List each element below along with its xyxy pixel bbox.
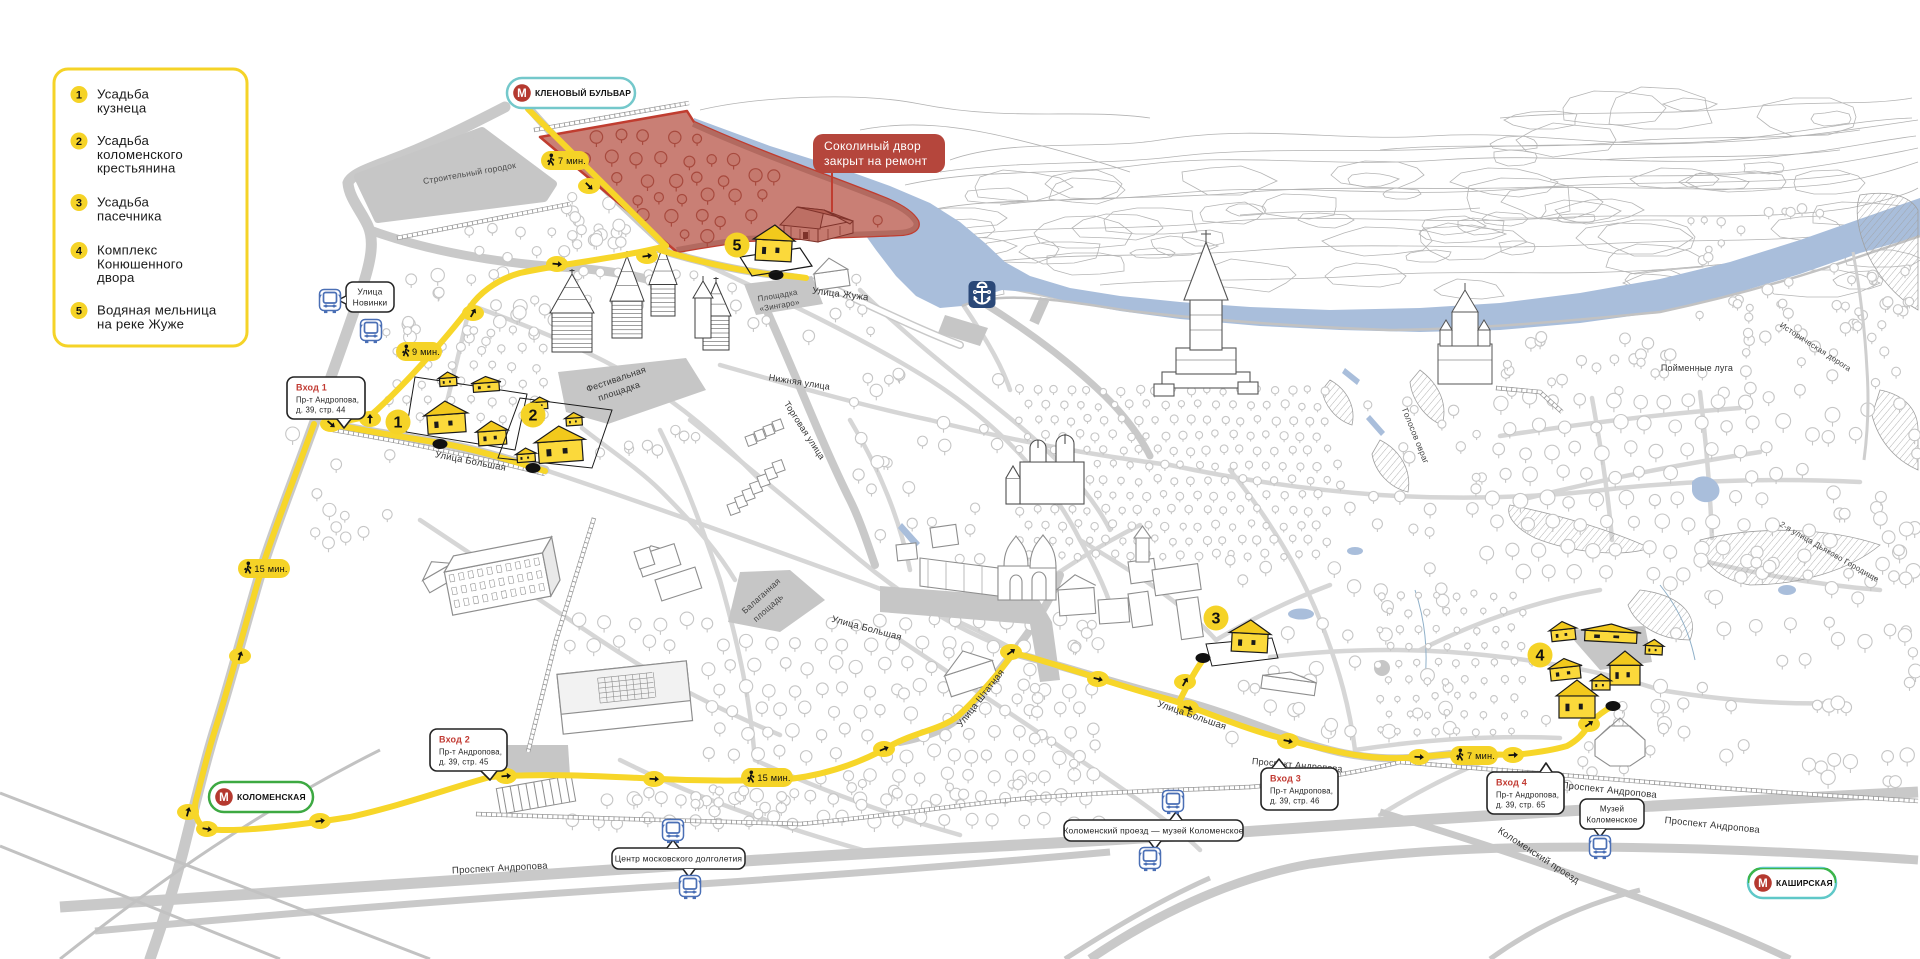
svg-text:5: 5 [76,306,82,318]
svg-text:на реке Жуже: на реке Жуже [97,316,184,331]
svg-text:Улица: Улица [357,287,382,297]
svg-text:Музей: Музей [1600,805,1624,814]
svg-text:2: 2 [76,136,82,148]
svg-text:Коломенское: Коломенское [1586,816,1638,825]
svg-text:Усадьба: Усадьба [97,87,149,102]
svg-text:7 мин.: 7 мин. [1467,751,1495,761]
svg-text:5: 5 [732,238,741,255]
svg-text:2: 2 [528,408,537,425]
svg-text:15 мин.: 15 мин. [757,773,790,783]
svg-text:Пойменные луга: Пойменные луга [1661,363,1733,373]
svg-text:1: 1 [393,415,402,432]
svg-text:М: М [1758,878,1768,890]
svg-text:КАШИРСКАЯ: КАШИРСКАЯ [1776,878,1833,888]
svg-text:Соколиный двор: Соколиный двор [824,139,921,153]
svg-text:пасечника: пасечника [97,208,162,223]
svg-text:Пр-т Андропова,: Пр-т Андропова, [439,748,502,757]
svg-text:Усадьба: Усадьба [97,195,149,210]
svg-text:3: 3 [76,198,82,210]
svg-text:д. 39, стр. 45: д. 39, стр. 45 [439,758,489,767]
svg-text:Вход 2: Вход 2 [439,735,470,745]
svg-text:д. 39, стр. 46: д. 39, стр. 46 [1270,797,1320,806]
svg-text:закрыт на ремонт: закрыт на ремонт [824,154,928,168]
svg-text:Пр-т Андропова,: Пр-т Андропова, [296,396,359,405]
svg-text:4: 4 [76,246,83,258]
svg-text:кузнеца: кузнеца [97,100,147,115]
svg-text:Вход 1: Вход 1 [296,383,327,393]
svg-text:Пр-т Андропова,: Пр-т Андропова, [1496,791,1559,800]
svg-text:Усадьба: Усадьба [97,133,149,148]
svg-text:КОЛОМЕНСКАЯ: КОЛОМЕНСКАЯ [237,792,306,802]
svg-text:двора: двора [97,270,135,285]
svg-text:1: 1 [76,90,82,102]
svg-text:д. 39, стр. 65: д. 39, стр. 65 [1496,801,1546,810]
svg-text:Водяная мельница: Водяная мельница [97,303,217,318]
svg-text:9 мин.: 9 мин. [412,347,440,357]
svg-text:М: М [517,88,527,100]
svg-text:Вход 4: Вход 4 [1496,778,1527,788]
svg-text:коломенского: коломенского [97,147,183,162]
svg-text:КЛЕНОВЫЙ БУЛЬВАР: КЛЕНОВЫЙ БУЛЬВАР [535,87,631,98]
svg-text:7 мин.: 7 мин. [558,156,586,166]
svg-text:Конюшенного: Конюшенного [97,256,183,271]
svg-text:4: 4 [1535,648,1544,665]
svg-text:Пр-т Андропова,: Пр-т Андропова, [1270,787,1333,796]
svg-text:М: М [219,792,229,804]
svg-text:3: 3 [1211,611,1220,628]
svg-text:Комплекс: Комплекс [97,243,158,258]
svg-text:Новинки: Новинки [353,298,388,308]
svg-text:Коломенский проезд — музей Кол: Коломенский проезд — музей Коломенское [1063,826,1243,836]
svg-text:Вход 3: Вход 3 [1270,774,1301,784]
svg-text:15 мин.: 15 мин. [254,564,287,574]
svg-text:Центр московского долголетия: Центр московского долголетия [615,854,743,864]
svg-text:д. 39, стр. 44: д. 39, стр. 44 [296,406,346,415]
svg-text:крестьянина: крестьянина [97,161,176,176]
